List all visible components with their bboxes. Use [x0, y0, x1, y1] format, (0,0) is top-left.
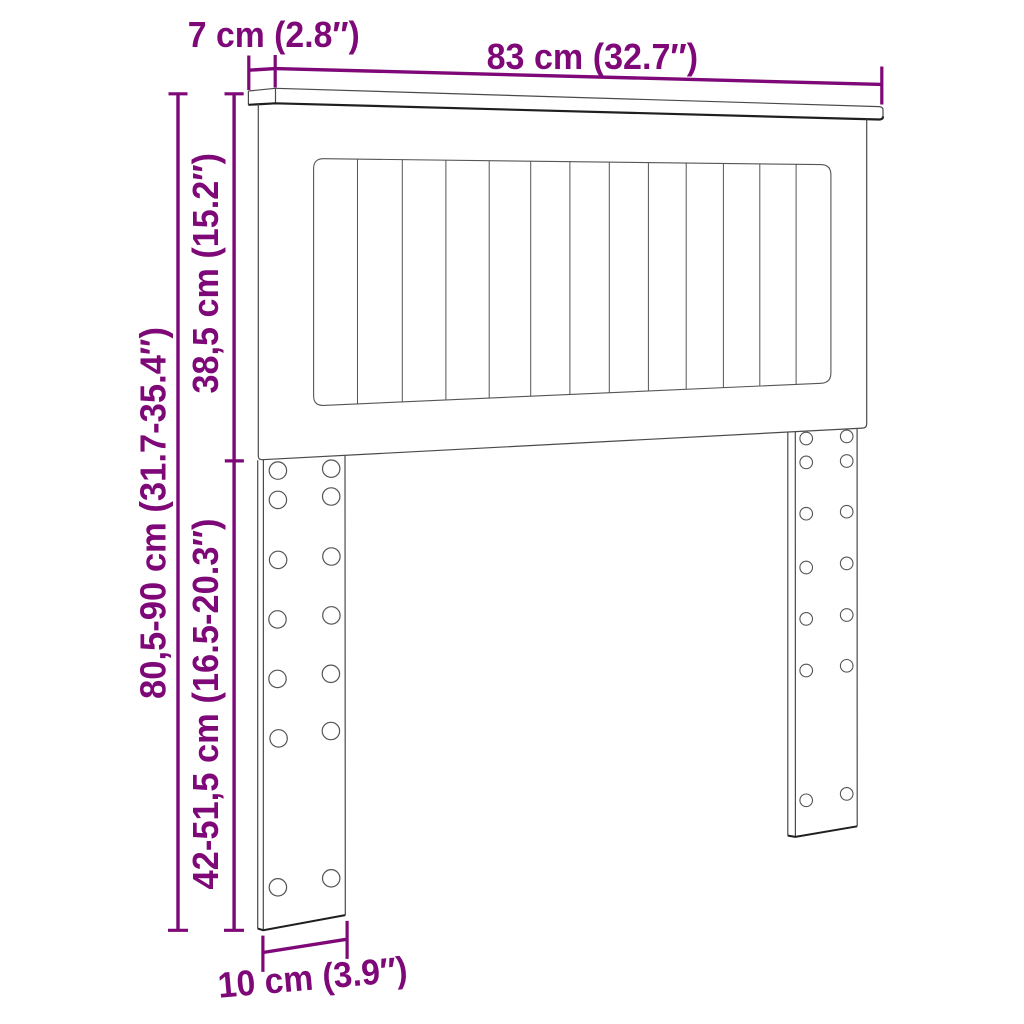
svg-text:80,5-90 cm (31.7-35.4″): 80,5-90 cm (31.7-35.4″) — [133, 327, 174, 699]
svg-text:7 cm (2.8″): 7 cm (2.8″) — [188, 14, 360, 55]
svg-text:38,5 cm (15.2″): 38,5 cm (15.2″) — [185, 153, 226, 394]
svg-text:42-51,5 cm (16.5-20.3″): 42-51,5 cm (16.5-20.3″) — [185, 519, 226, 890]
svg-text:83 cm (32.7″): 83 cm (32.7″) — [487, 36, 698, 77]
